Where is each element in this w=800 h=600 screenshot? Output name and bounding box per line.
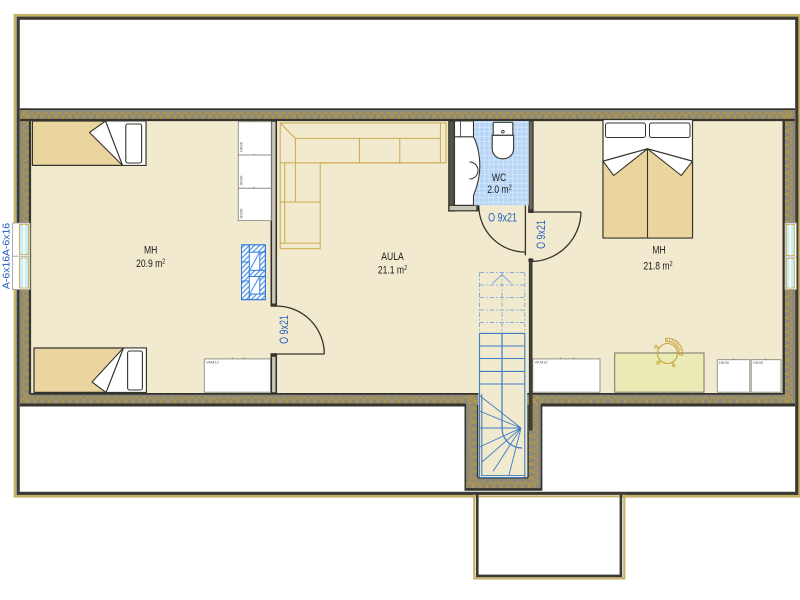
svg-text:AULA: AULA <box>381 251 404 263</box>
svg-text:A-6x16: A-6x16 <box>1 223 13 256</box>
svg-text:O 9x21: O 9x21 <box>488 213 517 225</box>
svg-text:HK06: HK06 <box>239 141 244 152</box>
svg-text:VKM12: VKM12 <box>535 360 549 365</box>
svg-text:VAM12: VAM12 <box>206 360 220 365</box>
svg-text:O 9x21: O 9x21 <box>279 315 291 344</box>
svg-text:HK90: HK90 <box>753 360 764 365</box>
svg-text:WC: WC <box>492 172 506 184</box>
svg-text:HK06: HK06 <box>239 208 244 219</box>
svg-text:A-6x16: A-6x16 <box>1 256 13 289</box>
svg-text:O 9x21: O 9x21 <box>536 220 548 249</box>
svg-text:20.9 m2: 20.9 m2 <box>136 258 166 270</box>
svg-text:HK90: HK90 <box>719 360 730 365</box>
svg-text:2.0 m2: 2.0 m2 <box>487 184 512 196</box>
svg-text:MH: MH <box>652 245 665 257</box>
svg-text:21.8 m2: 21.8 m2 <box>643 260 673 272</box>
svg-text:21.1 m2: 21.1 m2 <box>378 265 408 277</box>
svg-text:HK06: HK06 <box>239 175 244 186</box>
svg-text:MH: MH <box>144 245 157 257</box>
